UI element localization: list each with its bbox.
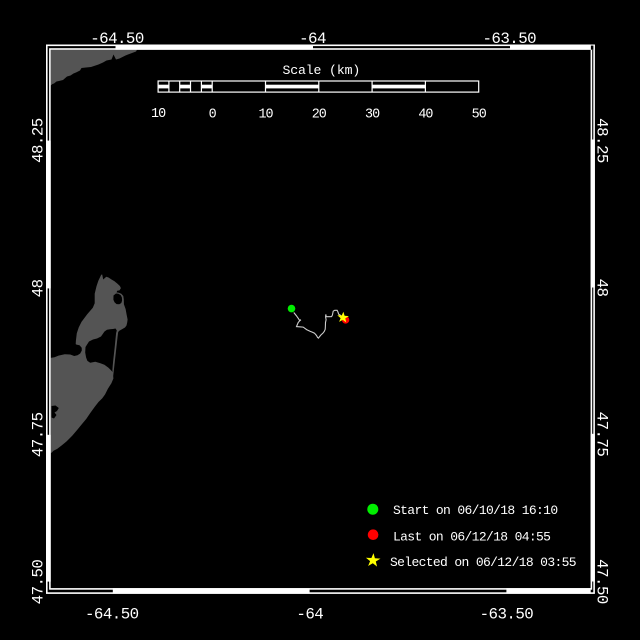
svg-text:30: 30 [365, 107, 380, 122]
svg-text:10: 10 [258, 107, 273, 122]
svg-text:-63.50: -63.50 [483, 30, 537, 48]
svg-text:50: 50 [472, 107, 487, 122]
svg-text:47.50: 47.50 [30, 560, 48, 605]
svg-text:20: 20 [312, 107, 327, 122]
svg-text:47.75: 47.75 [592, 412, 610, 457]
svg-text:48: 48 [30, 279, 48, 297]
svg-text:0: 0 [209, 107, 217, 122]
svg-text:48: 48 [592, 279, 610, 297]
svg-text:Last on 06/12/18 04:55: Last on 06/12/18 04:55 [393, 529, 550, 544]
svg-text:Selected on 06/12/18 03:55: Selected on 06/12/18 03:55 [390, 555, 576, 570]
svg-text:-64: -64 [299, 30, 326, 48]
svg-text:-63.50: -63.50 [480, 606, 534, 624]
svg-text:Start on 06/10/18 16:10: Start on 06/10/18 16:10 [393, 503, 557, 518]
svg-text:-64.50: -64.50 [90, 30, 144, 48]
svg-text:10: 10 [151, 107, 166, 122]
svg-text:47.75: 47.75 [30, 412, 48, 457]
svg-text:Scale (km): Scale (km) [282, 63, 360, 78]
svg-text:48.25: 48.25 [592, 118, 610, 163]
svg-text:48.25: 48.25 [30, 118, 48, 163]
svg-text:-64: -64 [296, 606, 323, 624]
svg-text:47.50: 47.50 [592, 559, 610, 604]
svg-text:40: 40 [418, 107, 433, 122]
svg-text:-64.50: -64.50 [85, 606, 139, 624]
